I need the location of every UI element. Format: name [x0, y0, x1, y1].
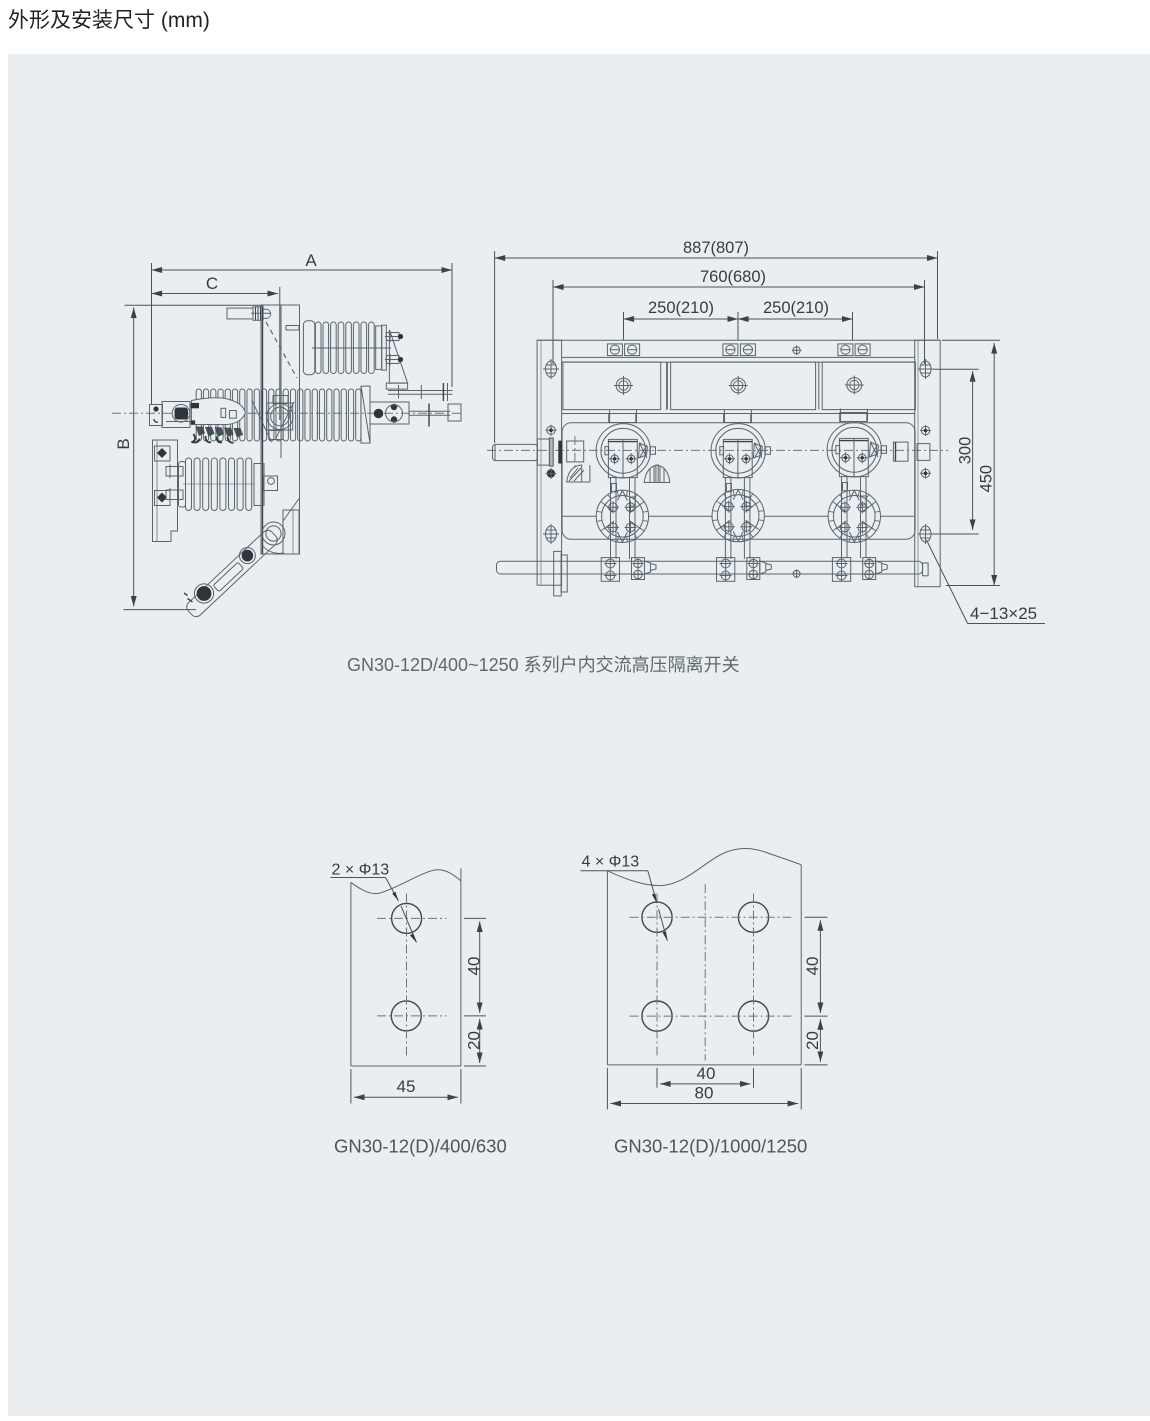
svg-text:45: 45	[397, 1077, 416, 1096]
svg-text:450: 450	[978, 465, 996, 493]
svg-text:GN30-12D/400~1250 系列户内交流高压隔离开关: GN30-12D/400~1250 系列户内交流高压隔离开关	[347, 655, 740, 675]
svg-text:250(210): 250(210)	[763, 299, 829, 317]
svg-text:250(210): 250(210)	[648, 299, 714, 317]
svg-text:C: C	[206, 274, 218, 293]
svg-text:GN30-12(D)/400/630: GN30-12(D)/400/630	[334, 1136, 507, 1157]
svg-text:GN30-12(D)/1000/1250: GN30-12(D)/1000/1250	[614, 1136, 807, 1157]
svg-text:外形及安装尺寸 (mm): 外形及安装尺寸 (mm)	[8, 9, 210, 32]
svg-text:20: 20	[464, 1031, 483, 1050]
svg-text:B: B	[114, 438, 133, 449]
svg-text:80: 80	[695, 1084, 714, 1103]
svg-text:300: 300	[957, 437, 975, 465]
svg-text:4 × Φ13: 4 × Φ13	[582, 854, 640, 871]
svg-text:A: A	[305, 251, 317, 270]
svg-text:887(807): 887(807)	[683, 239, 749, 257]
svg-text:4−13×25: 4−13×25	[970, 604, 1037, 623]
svg-text:40: 40	[803, 957, 822, 976]
svg-text:40: 40	[697, 1064, 716, 1083]
svg-text:2 × Φ13: 2 × Φ13	[332, 862, 390, 879]
svg-text:760(680): 760(680)	[700, 268, 766, 286]
svg-text:20: 20	[803, 1031, 822, 1050]
svg-text:40: 40	[464, 957, 483, 976]
